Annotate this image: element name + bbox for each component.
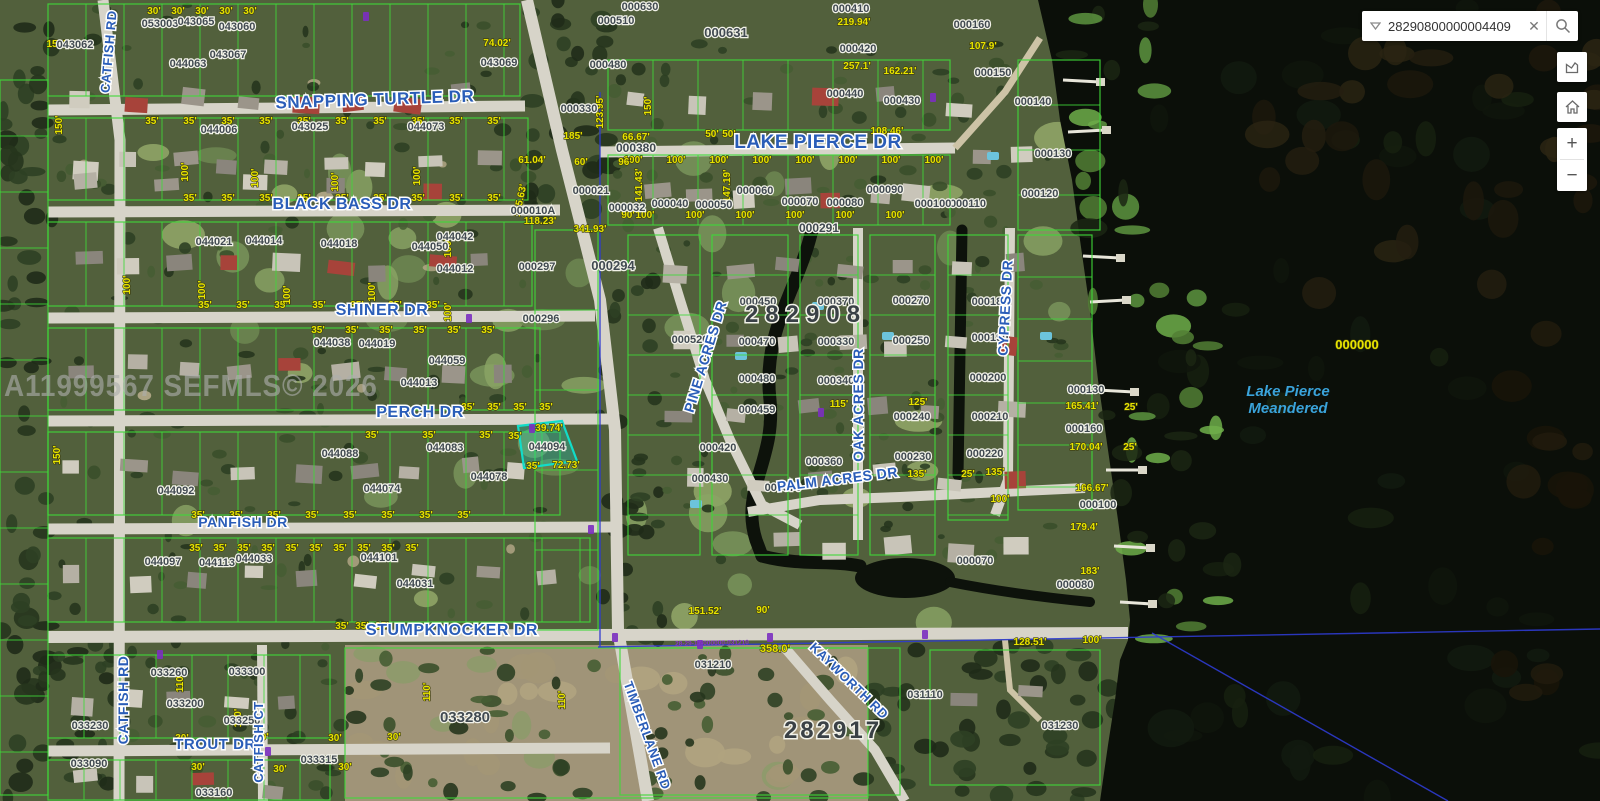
parcel-label: 000040 <box>652 198 689 210</box>
marsh-vegetation <box>1098 410 1115 420</box>
terrain-texture <box>1572 443 1593 460</box>
terrain-texture <box>370 679 391 691</box>
zoom-controls: + − <box>1557 128 1587 191</box>
dimension-label: 35' <box>183 193 197 204</box>
parcel-label: 000032 <box>609 202 646 214</box>
marsh-vegetation <box>1056 50 1088 59</box>
dimension-label: 100' <box>735 210 754 221</box>
parcel-label: 000080 <box>1057 579 1094 591</box>
parcel-label: 000230 <box>895 451 932 463</box>
marsh-vegetation <box>1193 341 1223 350</box>
terrain-texture <box>1492 370 1532 402</box>
terrain-texture <box>1051 664 1066 684</box>
parcel-label: 044074 <box>364 483 402 495</box>
terrain-texture <box>938 534 945 539</box>
dimension-label: 150' <box>54 115 65 134</box>
terrain-texture <box>1024 226 1063 256</box>
terrain-texture <box>521 652 556 683</box>
terrain-texture <box>13 22 36 32</box>
terrain-texture <box>1509 684 1543 701</box>
terrain-texture <box>571 46 584 61</box>
parcel-label: 000297 <box>519 261 556 273</box>
dock <box>1114 546 1150 548</box>
terrain-texture <box>398 218 408 230</box>
terrain-texture <box>911 134 925 142</box>
terrain-texture <box>18 615 37 626</box>
dimension-label: 341.93' <box>574 224 607 235</box>
terrain-texture <box>1387 70 1433 98</box>
terrain-texture <box>428 778 438 787</box>
terrain-texture <box>304 554 312 566</box>
dimension-label: 185' <box>563 131 582 142</box>
terrain-texture <box>616 74 626 85</box>
parcel-label: 044088 <box>322 448 359 460</box>
house <box>166 254 193 272</box>
terrain-texture <box>631 285 644 296</box>
terrain-texture <box>922 113 937 127</box>
terrain-texture <box>1559 488 1591 509</box>
marsh-vegetation <box>1146 453 1170 463</box>
terrain-texture <box>8 276 18 292</box>
terrain-texture <box>1054 353 1063 358</box>
dimension-label: 100' <box>180 162 191 181</box>
terrain-texture <box>25 298 49 307</box>
terrain-texture <box>38 671 48 688</box>
terrain-texture <box>1488 200 1519 238</box>
terrain-texture <box>552 677 561 690</box>
parcel-label: 044006 <box>201 124 238 136</box>
terrain-texture <box>630 513 649 522</box>
terrain-texture <box>630 492 650 501</box>
house <box>411 564 435 578</box>
terrain-texture <box>7 635 24 654</box>
marsh-vegetation <box>1171 450 1192 471</box>
zoom-out-button[interactable]: − <box>1557 160 1587 191</box>
terrain-texture <box>1348 508 1394 529</box>
terrain-texture <box>320 786 333 799</box>
marker-icon <box>588 525 594 534</box>
terrain-texture <box>928 379 939 387</box>
terrain-texture <box>895 107 906 118</box>
terrain-texture <box>276 130 284 139</box>
terrain-texture <box>967 168 983 180</box>
parcel-label: 000150 <box>975 67 1012 79</box>
terrain-texture <box>1463 181 1484 220</box>
terrain-texture <box>1506 464 1540 498</box>
terrain-texture <box>371 768 389 778</box>
dimension-label: 74.02' <box>483 38 510 49</box>
terrain-texture <box>596 36 613 48</box>
terrain-texture <box>1221 61 1257 94</box>
parcel-label: 044042 <box>437 231 474 243</box>
dimension-label: 100' <box>1082 635 1101 646</box>
dimension-label: 90' <box>756 605 770 616</box>
parcel-label: 000380 <box>616 141 656 155</box>
parcel-label: 000070 <box>957 555 994 567</box>
parcel-label: 044059 <box>429 355 466 367</box>
terrain-texture <box>700 172 713 182</box>
terrain-texture <box>691 39 708 48</box>
terrain-texture <box>9 170 28 185</box>
terrain-texture <box>424 67 439 74</box>
parcel-label: 044094 <box>529 441 567 453</box>
terrain-texture <box>929 428 942 435</box>
terrain-texture <box>884 521 893 529</box>
dock-platform <box>1116 254 1125 262</box>
marsh-vegetation <box>1068 13 1102 25</box>
marsh-vegetation <box>1075 172 1091 190</box>
parcel-label: 044063 <box>170 58 207 70</box>
terrain-texture <box>1266 681 1301 716</box>
terrain-texture <box>276 563 287 577</box>
terrain-texture <box>728 573 752 596</box>
terrain-texture <box>302 43 310 48</box>
dimension-label: 25' <box>1123 442 1137 453</box>
marsh-vegetation <box>1138 22 1159 31</box>
home-button[interactable] <box>1557 92 1587 122</box>
home-icon <box>1564 99 1581 115</box>
terrain-texture <box>783 759 793 774</box>
dimension-label: 35' <box>449 116 463 127</box>
marsh-vegetation <box>1168 539 1185 562</box>
terrain-texture <box>505 729 514 742</box>
parcel-map[interactable]: 35'35'35'35'35'35'35'35'35'35'35'35'35'3… <box>0 0 1600 801</box>
terrain-texture <box>158 572 165 581</box>
dimension-label: 35' <box>198 300 212 311</box>
zoom-in-button[interactable]: + <box>1557 128 1587 159</box>
terrain-texture <box>1527 649 1550 663</box>
road <box>48 748 610 751</box>
lake-name-label: Meandered <box>1248 400 1328 417</box>
parcel-label: 000294 <box>591 258 635 273</box>
parcel-label: 043062 <box>57 39 94 51</box>
terrain-texture <box>1273 258 1289 283</box>
search-dropdown-caret-icon[interactable] <box>1362 22 1388 30</box>
house <box>1011 146 1033 162</box>
dimension-label: 100' <box>752 155 771 166</box>
dimension-label: 100' <box>838 155 857 166</box>
dimension-label: 128.51' <box>1014 637 1047 648</box>
marsh-vegetation <box>1223 553 1241 577</box>
parcel-label: 033300 <box>229 666 266 678</box>
terrain-texture <box>683 240 690 246</box>
dimension-label: 35' <box>479 430 493 441</box>
terrain-texture <box>445 51 455 57</box>
marsh-vegetation <box>1118 179 1128 206</box>
terrain-texture <box>712 272 722 277</box>
search-input[interactable] <box>1388 19 1522 34</box>
parcel-label: 000430 <box>884 95 921 107</box>
house <box>181 87 205 106</box>
house <box>227 364 252 380</box>
marsh-vegetation <box>1075 150 1105 172</box>
terrain-texture <box>690 692 706 703</box>
marsh-vegetation <box>1209 416 1222 441</box>
parcel-label: 044101 <box>361 552 398 564</box>
parcel-label: 000060 <box>737 185 774 197</box>
parcel-label: 053003 <box>142 18 179 30</box>
terrain-texture <box>670 372 680 377</box>
marsh-vegetation <box>1172 330 1194 344</box>
house <box>418 155 442 167</box>
terrain-texture <box>662 487 672 494</box>
dimension-label: 35' <box>487 116 501 127</box>
parcel-label: 000130 <box>1035 148 1072 160</box>
parcel-label: 000459 <box>739 404 776 416</box>
house <box>117 258 139 274</box>
dock <box>1090 300 1126 302</box>
terrain-texture <box>17 425 35 436</box>
terrain-texture <box>522 365 533 378</box>
terrain-texture <box>198 716 216 728</box>
parcel-label: 044092 <box>158 485 195 497</box>
parcel-label: 000510 <box>598 15 635 27</box>
marker-icon <box>466 314 472 323</box>
terrain-texture <box>1297 82 1343 100</box>
terrain-texture <box>661 63 671 76</box>
search-button[interactable] <box>1546 11 1578 41</box>
terrain-texture <box>260 141 269 154</box>
polygon-extent-icon <box>1564 60 1580 75</box>
dimension-label: 118.23' <box>524 216 556 227</box>
terrain-texture <box>138 391 152 401</box>
house <box>476 566 500 579</box>
parcel-label: 044038 <box>314 337 351 349</box>
parcel-label: 031210 <box>695 659 732 671</box>
dimension-label: 72.73' <box>552 460 579 471</box>
terrain-texture <box>403 764 413 780</box>
street-label: LAKE PIERCE DR <box>734 132 901 153</box>
terrain-texture <box>6 514 17 533</box>
terrain-texture <box>537 184 555 203</box>
dimension-label: 179.4' <box>1070 522 1097 533</box>
search-bar: ✕ <box>1362 11 1578 41</box>
terrain-texture <box>983 190 996 197</box>
parcel-label: 044019 <box>359 338 396 350</box>
terrain-texture <box>303 26 309 38</box>
parcel-label: 044018 <box>321 238 358 250</box>
terrain-texture <box>785 367 798 374</box>
dimension-label: 257.1' <box>843 61 870 72</box>
dimension-label: 135' <box>907 469 926 480</box>
terrain-texture <box>414 590 438 607</box>
terrain-texture <box>60 396 67 408</box>
terrain-texture <box>288 376 305 381</box>
extent-tool-button[interactable] <box>1557 52 1587 82</box>
parcel-label: 000440 <box>827 88 864 100</box>
terrain-texture <box>43 21 54 37</box>
house <box>688 96 706 115</box>
magnifier-icon <box>1555 18 1571 34</box>
terrain-texture <box>1532 538 1554 555</box>
terrain-texture <box>40 655 53 665</box>
house <box>262 785 284 801</box>
dimension-label: 35' <box>309 543 323 554</box>
terrain-texture <box>14 683 39 704</box>
house <box>354 574 377 589</box>
terrain-texture <box>984 216 997 228</box>
clear-search-button[interactable]: ✕ <box>1522 11 1546 41</box>
house <box>179 362 199 377</box>
road <box>48 419 612 421</box>
terrain-texture <box>1030 280 1043 290</box>
terrain-texture <box>1302 277 1336 309</box>
terrain-texture <box>24 208 45 225</box>
parcel-label: 000090 <box>867 184 904 196</box>
terrain-texture <box>63 657 84 665</box>
terrain-texture <box>651 520 665 529</box>
terrain-texture <box>24 362 39 373</box>
terrain-texture <box>433 277 439 285</box>
dimension-label: 115' <box>830 399 849 410</box>
terrain-texture <box>50 669 65 681</box>
terrain-texture <box>321 679 338 686</box>
house <box>494 365 512 383</box>
terrain-texture <box>1430 348 1448 367</box>
parcel-label: 000330 <box>561 103 598 115</box>
terrain-texture <box>32 117 54 129</box>
terrain-texture <box>695 775 706 790</box>
terrain-texture <box>1026 781 1046 796</box>
terrain-texture <box>932 182 947 192</box>
dimension-label: 100' <box>197 280 208 299</box>
terrain-texture <box>52 135 66 143</box>
dimension-label: 30' <box>243 6 257 17</box>
house <box>663 265 688 284</box>
terrain-texture <box>1383 131 1402 153</box>
terrain-texture <box>899 165 916 175</box>
parcel-label: 000210 <box>972 411 1009 423</box>
dimension-label: 39.74' <box>535 423 562 434</box>
dimension-label: 35' <box>312 300 326 311</box>
terrain-texture <box>57 171 67 182</box>
dimension-label: 35' <box>381 510 395 521</box>
dimension-label: 35' <box>481 325 495 336</box>
terrain-texture <box>1377 473 1405 489</box>
house <box>726 264 755 280</box>
terrain-texture <box>853 772 874 785</box>
dimension-label: 35' <box>508 431 522 442</box>
terrain-texture <box>1531 663 1564 684</box>
terrain-texture <box>919 265 932 274</box>
dimension-label: 35' <box>183 116 197 127</box>
marker-icon <box>930 93 936 102</box>
dimension-label: 35' <box>449 193 463 204</box>
terrain-texture <box>321 643 329 651</box>
terrain-texture <box>1150 104 1168 132</box>
parcel-label: 000021 <box>573 185 610 197</box>
dock-platform <box>1146 544 1155 552</box>
terrain-texture <box>344 686 354 695</box>
dimension-label: 35' <box>373 116 387 127</box>
road <box>48 316 595 318</box>
terrain-texture <box>1348 37 1383 71</box>
terrain-texture <box>291 731 305 744</box>
lake-name-label: Lake Pierce <box>1246 383 1329 400</box>
terrain-texture <box>1531 321 1562 347</box>
parcel-label: 000360 <box>806 456 843 468</box>
dimension-label: 30' <box>219 6 233 17</box>
dimension-label: 100' <box>367 282 378 301</box>
marker-icon <box>922 630 928 639</box>
terrain-texture <box>769 736 785 754</box>
marsh-vegetation <box>1127 531 1148 543</box>
terrain-texture <box>834 367 844 374</box>
house <box>798 398 820 414</box>
marsh-vegetation <box>1179 387 1203 408</box>
dimension-label: 35' <box>335 116 349 127</box>
parcel-label: 033200 <box>167 698 204 710</box>
terrain-texture <box>304 169 310 179</box>
terrain-texture <box>480 71 491 77</box>
terrain-texture <box>179 242 191 253</box>
dimension-label: 35' <box>422 430 436 441</box>
terrain-texture <box>1190 702 1224 733</box>
terrain-texture <box>467 656 497 673</box>
terrain-texture <box>642 339 658 352</box>
terrain-texture <box>1078 661 1097 681</box>
dimension-label: 150' <box>52 445 63 464</box>
terrain-texture <box>553 760 570 776</box>
marker-icon <box>767 633 773 642</box>
house <box>75 251 103 265</box>
terrain-texture <box>203 192 212 203</box>
terrain-texture <box>26 546 41 563</box>
parcel-label: 033280 <box>440 709 490 726</box>
parcel-label: 000410 <box>833 3 870 15</box>
terrain-texture <box>780 64 793 74</box>
terrain-texture <box>379 651 392 667</box>
parcel-label: 044083 <box>427 442 464 454</box>
terrain-texture <box>996 165 1011 179</box>
terrain-texture <box>1494 181 1523 198</box>
terrain-texture <box>1464 688 1506 723</box>
dock-platform <box>1102 126 1111 134</box>
house <box>128 354 148 369</box>
terrain-texture <box>238 351 255 358</box>
marker-icon <box>363 12 369 21</box>
terrain-texture <box>726 322 739 333</box>
terrain-texture <box>653 486 663 498</box>
terrain-texture <box>477 21 491 29</box>
terrain-texture <box>53 651 65 662</box>
dimension-label: 30' <box>387 732 401 743</box>
house <box>952 261 972 276</box>
terrain-texture <box>828 277 836 286</box>
terrain-texture <box>461 22 469 29</box>
parcel-label: 044021 <box>196 236 233 248</box>
terrain-texture <box>16 759 33 773</box>
dimension-label: 30' <box>147 6 161 17</box>
dimension-label: 35' <box>539 402 553 413</box>
dock <box>1063 80 1100 82</box>
parcel-label: 000160 <box>1066 423 1103 435</box>
house <box>365 162 385 177</box>
dimension-label: 35' <box>259 193 273 204</box>
house <box>154 178 179 191</box>
terrain-texture <box>15 477 35 495</box>
dimension-label: 219.94' <box>838 17 871 28</box>
terrain-texture <box>19 577 35 589</box>
dimension-label: 30' <box>273 764 287 775</box>
dock-platform <box>1148 600 1157 608</box>
marsh-vegetation <box>1138 83 1172 98</box>
terrain-texture <box>200 480 213 487</box>
map-viewport[interactable]: 35'35'35'35'35'35'35'35'35'35'35'35'35'3… <box>0 0 1600 801</box>
house <box>136 776 153 793</box>
terrain-texture <box>88 466 101 480</box>
terrain-texture <box>311 385 327 391</box>
